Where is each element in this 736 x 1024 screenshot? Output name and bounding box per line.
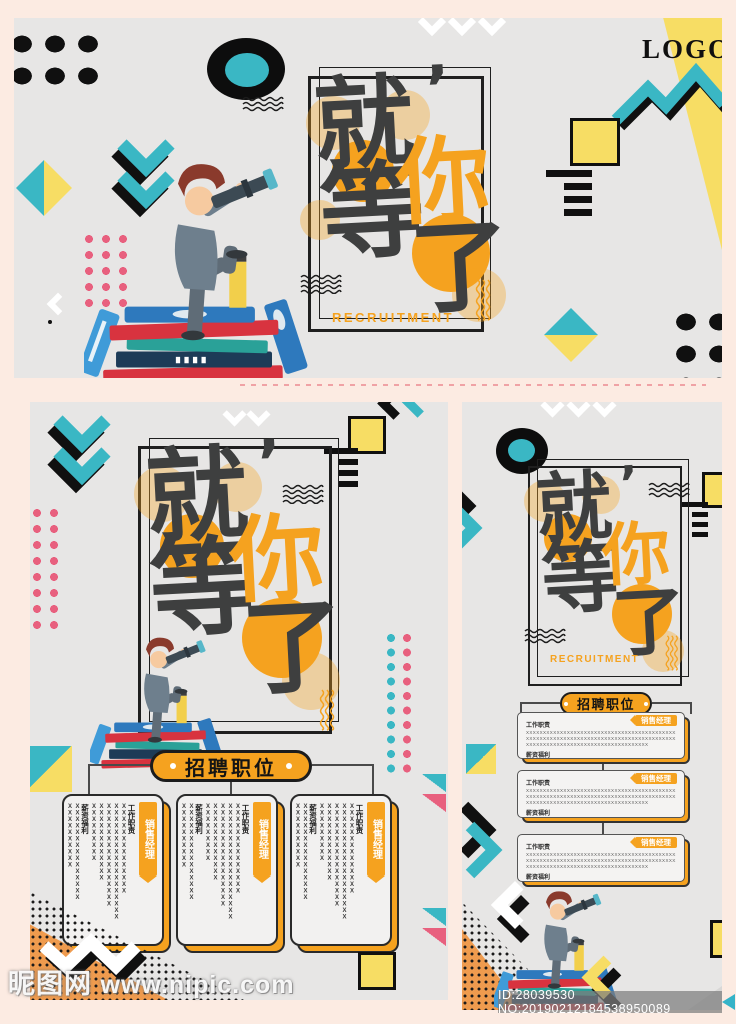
pink-triangle [422,928,446,946]
image-id-bar: ID:28039530 NO:20190212184538950089 [498,991,722,1013]
card-body: 工作职责 XXXXXXXXXXXXXX XXXXXXXXXXXXXXXXXX X… [290,794,392,946]
headline-comma: ’ [424,57,452,122]
headline-comma: ’ [256,431,283,494]
position-tag: 销售经理 [367,802,385,876]
brand-logo: LOGO [642,34,722,65]
teal-triangle [422,908,446,926]
split-square-icon [466,744,496,774]
target-circle-inner [225,53,269,87]
white-chevron-icon [566,402,590,418]
stock-preview-page: LOGO 就 ’ 等 你 了 [0,0,736,1024]
benefits-label: 薪资福利 [526,808,676,817]
duties-label: 工作职责 [241,804,250,936]
benefits-label: 薪资福利 [309,804,318,936]
squiggle-vertical-icon [315,689,335,731]
benefit-placeholder: XXXXXXXXXX [294,804,302,936]
pill-dot [564,702,568,706]
step-bars-icon [546,170,594,218]
position-tag: 销售经理 [139,802,157,876]
duty-placeholder: XXXXXXXXXXXX [211,804,219,936]
connector-line [312,764,374,766]
poster-left: 就 ’ 等 你 了 [30,402,448,1000]
connector-line [690,702,692,714]
section-title-pill: 招聘职位 [150,750,312,782]
duty-placeholder: XXXXXXXXXXXXXXXX [105,804,113,936]
yellow-square-icon [358,952,396,990]
position-tag: 销售经理 [635,773,677,784]
duty-placeholder: XXXXXXXXXXXXXXXXXXXXXXXXXXXXXXXXXXXX [526,742,676,748]
connector-line [520,702,560,704]
double-chevron-zigzag-icon [462,798,514,884]
duty-placeholder: XXXXXXXXXXXXXX [348,804,356,936]
white-chevron-icon [540,402,564,418]
duty-placeholder: XXXXXXXXXXXXXXXXXXXXXXXXXXXXXXXXXXXX [526,800,676,806]
site-watermark: 昵图网 www.nipic.com [8,962,295,1001]
benefits-label: 薪资福利 [526,872,676,881]
pink-dot-column [402,632,414,777]
mountain-zigzag-icon [612,68,722,138]
diamond-icon [544,308,598,362]
duty-placeholder: XXXXXXXXX [318,804,326,936]
duty-placeholder: XXXXXXXXXXXXXX [120,804,128,936]
duty-placeholder: XXXXXXXXXXXXXXXXXXXXXXXXXXXXXXXXXXXX [526,864,676,870]
white-chevron-icon [478,18,506,36]
benefit-placeholder: XXXXXXXXXX [180,804,188,936]
connector-line [652,702,692,704]
target-circle-inner [508,439,535,462]
black-dots-grid [670,308,722,378]
image-id-text: ID:28039530 NO:20190212184538950089 [498,988,722,1016]
card-body: 工作职责 XXXXXXXXXXXXXX XXXXXXXXXXXXXXXXXX X… [176,794,278,946]
duty-placeholder: XXXXXXXXXXXXXX [234,804,242,936]
section-title: 招聘职位 [577,694,635,713]
headline-char: 了 [239,595,346,702]
white-chevron-icon [418,18,446,36]
black-dots-grid [14,30,106,94]
white-chevron-icon [246,402,270,426]
recruitment-subtitle: RECRUITMENT [550,654,639,665]
squiggle-icon [524,628,566,648]
position-tag: 销售经理 [635,715,677,726]
benefits-label: 薪资福利 [526,750,676,759]
card-content: 工作职责 XXXXXXXXXXXXXX XXXXXXXXXXXXXXXXXX X… [298,804,364,936]
yellow-square-icon [570,118,620,166]
double-chevron-zigzag-icon [46,412,112,502]
white-chevron-icon [448,18,476,36]
duties-label: 工作职责 [127,804,136,936]
position-tag: 销售经理 [635,837,677,848]
duty-placeholder: XXXXXXXXXXXXXXXXXX [226,804,234,936]
diamond-icon [16,160,72,216]
teal-triangle [422,774,446,792]
duty-placeholder: XXXXXXXXXXXX [97,804,105,936]
pink-dots-grid [30,506,58,630]
watermark-brand: 昵图网 [8,969,92,999]
job-card: 工作职责 XXXXXXXXXXXXXXXXXXXXXXXXXXXXXXXXXXX… [517,712,685,759]
pill-dot [170,763,176,769]
duties-label: 工作职责 [355,804,364,936]
duty-placeholder: XXXXXXXXX [204,804,212,936]
white-chevron-icon [222,402,246,426]
duty-placeholder: XXXXXXXXXXXXXXXXXX [112,804,120,936]
double-chevron-zigzag-icon [462,476,494,560]
teal-check-icon [401,402,434,418]
man-telescope-books-illustration [84,158,319,378]
card-content: 工作职责 XXXXXXXXXXXXXX XXXXXXXXXXXXXXXXXX X… [70,804,136,936]
squiggle-vertical-icon [661,635,679,671]
duty-placeholder: XXXXXXXXXXXXXXXX [333,804,341,936]
connector-line [88,764,150,766]
benefits-label: 薪资福利 [81,804,90,936]
section-title: 招聘职位 [185,752,277,781]
job-card: 工作职责 XXXXXXXXXXXXXXXXXXXXXXXXXXXXXXXXXXX… [517,834,685,882]
job-card: 工作职责 XXXXXXXXXXXXXX XXXXXXXXXXXXXXXXXX X… [290,794,392,946]
squiggle-icon [648,482,690,502]
black-dot [48,320,52,324]
teal-dot-column [386,632,398,777]
pill-dot [644,702,648,706]
connector-line [88,764,90,794]
duty-placeholder: XXXXXXXXXXXX [325,804,333,936]
white-chevron-icon [592,402,616,418]
pink-triangle [422,794,446,812]
squiggle-vertical-icon [471,279,491,321]
teal-arrow-icon [722,994,735,1010]
recruitment-subtitle: RECRUITMENT [332,310,454,325]
yellow-square-icon [710,920,722,958]
benefit-placeholder: XXXXXXXXXXXXXXX [187,804,195,936]
benefits-label: 薪资福利 [195,804,204,936]
split-square-icon [30,746,72,792]
poster-right: 就 ’ 等 你 了 RECRUITMENT 招聘职位 工作职责 XXXXXXXX… [462,402,722,1010]
white-chevron-icon [47,293,70,316]
squiggle-icon [242,96,284,116]
card-content: 工作职责 XXXXXXXXXXXXXX XXXXXXXXXXXXXXXXXX X… [184,804,250,936]
poster-banner: LOGO 就 ’ 等 你 了 [14,18,722,378]
headline-comma: ’ [619,460,640,509]
squiggle-icon [282,484,324,504]
crop-dash-line [240,384,706,386]
job-card: 工作职责 XXXXXXXXXXXXXX XXXXXXXXXXXXXXXXXX X… [176,794,278,946]
duty-placeholder: XXXXXXXXX [90,804,98,936]
position-tag: 销售经理 [253,802,271,876]
pill-dot [286,763,292,769]
benefit-placeholder: XXXXXXXXXXXXXXX [301,804,309,936]
headline-char: 了 [407,215,512,320]
job-card: 工作职责 XXXXXXXXXXXXXXXXXXXXXXXXXXXXXXXXXXX… [517,770,685,818]
duty-placeholder: XXXXXXXXXXXXXXXX [219,804,227,936]
duty-placeholder: XXXXXXXXXXXXXXXXXX [340,804,348,936]
watermark-url: www.nipic.com [101,971,295,999]
connector-line [372,764,374,794]
